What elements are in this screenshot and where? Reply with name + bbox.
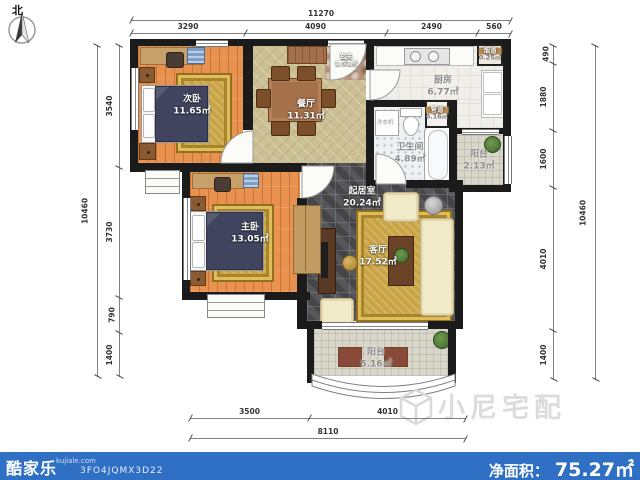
pillow (143, 88, 155, 112)
floor-plan-canvas: 北 洗衣机 (0, 0, 640, 480)
bay-window-bed2 (145, 170, 180, 194)
washing-machine-label: 洗衣机 (377, 118, 394, 126)
room-label-kitchen: 厨房6.77㎡ (427, 75, 458, 98)
entry-door-gap (328, 40, 364, 47)
wall-balcony-top-b (428, 321, 463, 329)
dim-right-segments: 490 1880 1600 4010 1400 (542, 45, 554, 380)
room-label-entry: 玄关1.51㎡ (335, 54, 358, 69)
slider-kitchen-balcony (462, 129, 499, 135)
shoe-cabinet (287, 46, 327, 64)
dining-chair (271, 66, 290, 81)
compass-needle-light (22, 12, 29, 43)
dim-top-segments: 3290 4090 2490 560 (131, 22, 511, 34)
pillow (143, 114, 155, 138)
sink-module (483, 94, 502, 115)
brand-logo-text: 酷家乐 (6, 455, 57, 479)
dim-right-total: 10460 (584, 45, 596, 380)
wall-balcony-right (448, 329, 456, 383)
watermark: 小尼宅配 (398, 386, 566, 425)
window-master-left (183, 198, 191, 280)
net-area-label: 净面积： (489, 460, 549, 480)
room-label-bathroom: 卫生间4.89㎡ (394, 142, 425, 165)
nightstand (139, 67, 155, 83)
bay-window-master (207, 294, 265, 318)
window-bed2-left (131, 68, 139, 130)
pillow (192, 242, 205, 268)
dining-chair (256, 89, 271, 108)
wall-hall-left-b (297, 198, 307, 205)
dim-left-segments: 3540 3730 790 1400 (108, 45, 120, 377)
sofa (420, 218, 454, 316)
compass-circle (9, 17, 35, 43)
wall-partition-bed2-dining (243, 39, 253, 130)
nightstand (190, 196, 206, 211)
brand-domain: kujiale.com (56, 457, 96, 465)
plan-id: 3FO4JQMX3D22 (80, 466, 164, 476)
pillow (192, 215, 205, 241)
tv-screen (321, 242, 328, 278)
balcony-planter (338, 347, 362, 367)
wall-bath-right (449, 100, 457, 188)
room-label-master-bedroom: 主卧13.05㎡ (231, 222, 268, 245)
wall-balcony-left (307, 329, 314, 383)
chair (166, 52, 184, 68)
dim-left-total: 10460 (86, 45, 98, 377)
storage-box (187, 47, 205, 64)
dining-chair (271, 121, 290, 136)
chair (214, 177, 231, 192)
stove-burner (410, 51, 421, 62)
wardrobe-door-line (305, 206, 306, 271)
armchair (383, 192, 419, 222)
net-area: 净面积： 75.27㎡ (489, 455, 634, 480)
wall-right-notch (455, 188, 463, 329)
nightstand (190, 271, 206, 286)
window-right-balcony (504, 136, 512, 184)
pouf (342, 255, 358, 271)
room-label-right-balcony: 阳台2.13㎡ (463, 149, 494, 172)
wardrobe (293, 205, 321, 274)
storage-box (243, 173, 259, 188)
nightstand (139, 143, 156, 160)
dining-chair (297, 121, 316, 136)
room-label-pipe-shaft: 管道0.16㎡ (426, 107, 449, 122)
wall-kitchen-left-a (366, 39, 374, 70)
side-table (424, 196, 443, 215)
dim-bottom-total: 8110 (190, 427, 466, 439)
stove-burner (428, 51, 439, 62)
slider-living-balcony (322, 322, 428, 330)
compass-north-label: 北 (12, 2, 23, 18)
room-label-second-bedroom: 次卧11.65㎡ (173, 94, 210, 117)
sink-module (483, 72, 502, 93)
wall-top (130, 39, 511, 46)
wall-hall-left-a (297, 163, 307, 168)
bathtub-inner (428, 130, 448, 180)
wall-balcony-top-a (300, 321, 322, 329)
dim-top-total: 11270 (131, 9, 511, 21)
room-label-living-room: 客厅17.52㎡ (359, 245, 396, 268)
room-label-bottom-balcony: 阳台5.16㎡ (360, 347, 391, 370)
dining-chair (297, 66, 316, 81)
footer-bar: 酷家乐 kujiale.com 3FO4JQMX3D22 净面积： 75.27㎡ (0, 452, 640, 480)
net-area-value: 75.27㎡ (555, 455, 634, 480)
room-label-living-hall: 起居室20.24㎡ (343, 186, 380, 209)
room-label-flue: 烟道0.25㎡ (479, 48, 502, 63)
watermark-text: 小尼宅配 (438, 386, 566, 425)
window-top-bed2 (196, 40, 228, 47)
wall-kitchen-left-b (366, 100, 374, 188)
dim-bottom-segments: 3500 4010 (190, 407, 466, 419)
room-label-dining: 餐厅11.31㎡ (287, 99, 324, 122)
